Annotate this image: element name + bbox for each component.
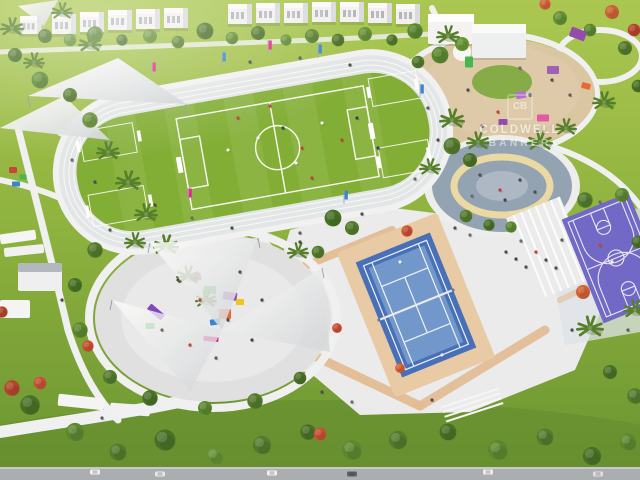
aerial-park-render: CB COLDWELL BANKER bbox=[0, 0, 640, 480]
scene-canvas bbox=[0, 0, 640, 480]
sunlight-haze bbox=[0, 0, 640, 480]
